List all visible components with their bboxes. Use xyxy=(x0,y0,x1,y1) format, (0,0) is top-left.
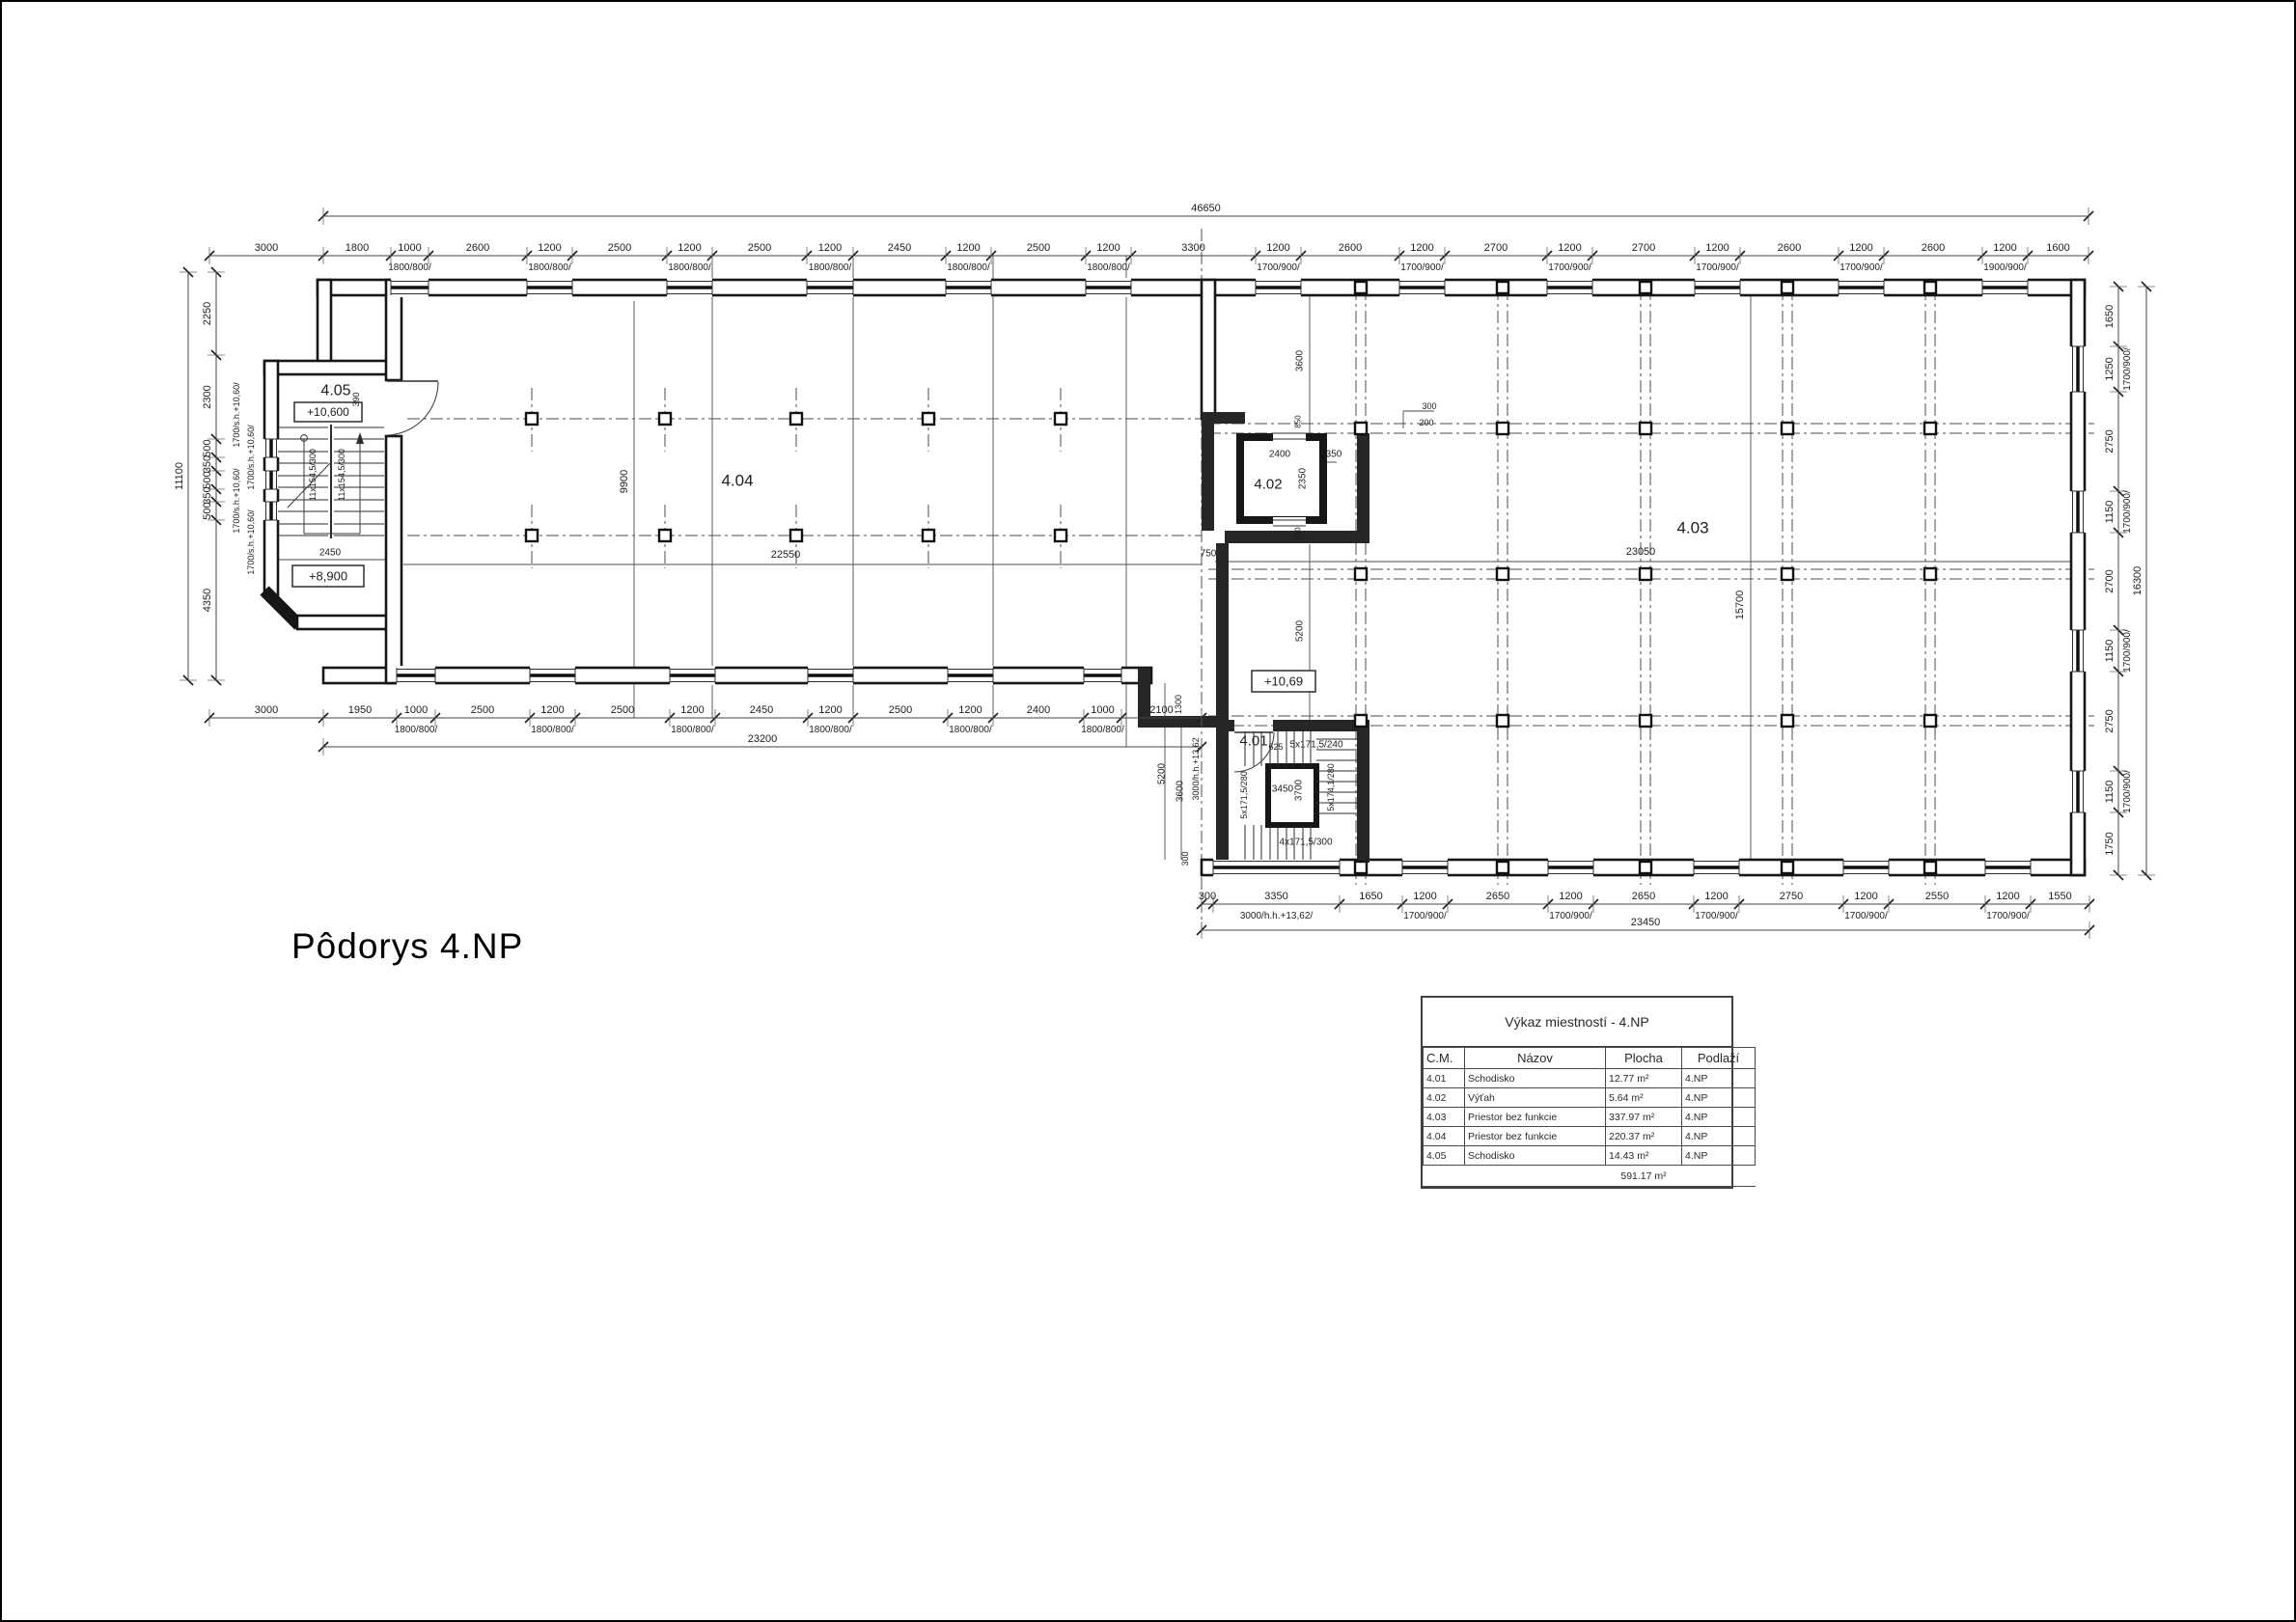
window-spec-label: 1800/800/ xyxy=(1087,262,1130,273)
room-table-header-podlazi: Podlaží xyxy=(1682,1048,1756,1069)
table-cell: 4.03 xyxy=(1424,1108,1465,1127)
column-marker xyxy=(1055,413,1066,425)
dimension-chains-layer: 3000180010002600120025001200250012002450… xyxy=(174,203,2155,939)
drawing-labels-layer: 4.05+10,6002450+8,90011x154,5/30011x154,… xyxy=(232,349,1746,866)
dim-label: 2500 xyxy=(611,704,634,716)
wall-segment xyxy=(297,616,392,629)
table-cell: 4.05 xyxy=(1424,1146,1465,1166)
room-table-header-nazov: Názov xyxy=(1465,1048,1606,1069)
drawing-label: 3000/h.h.+13,62 xyxy=(1191,737,1201,800)
wall-segment xyxy=(386,436,401,683)
table-row: 4.05 Schodisko 14.43 m² 4.NP xyxy=(1424,1146,1756,1166)
dim-chain: 3000180010002600120025001200250012002450… xyxy=(205,242,2093,273)
room-table: Výkaz miestností - 4.NP C.M. Názov Ploch… xyxy=(1421,996,1733,1189)
dim-label: 1800 xyxy=(346,242,369,254)
dim-label: 1200 xyxy=(818,242,842,254)
dim-label: 3350 xyxy=(1264,891,1287,902)
column-marker xyxy=(1640,282,1651,293)
table-total-row: 591.17 m² xyxy=(1424,1166,1756,1187)
wall-segment xyxy=(318,280,331,367)
dim-label: 1150 xyxy=(2104,501,2116,524)
column-marker xyxy=(1924,568,1936,580)
table-cell: 14.43 m² xyxy=(1606,1146,1682,1166)
window-spec-label: 1700/900/ xyxy=(2122,629,2133,673)
column-marker xyxy=(1497,282,1508,293)
dim-label: 1000 xyxy=(1091,704,1114,716)
drawing-label: 3700 xyxy=(1294,779,1305,801)
window-spec-label: 1800/800/ xyxy=(395,725,438,735)
room-label-4-02: 4.02 xyxy=(1254,477,1282,493)
dim-label: 2600 xyxy=(1778,242,1801,254)
window-spec-label: 1800/800/ xyxy=(528,262,571,273)
drawing-label: 22550 xyxy=(771,549,801,561)
table-cell: 5.64 m² xyxy=(1606,1088,1682,1108)
drawing-label: 300 xyxy=(1422,401,1436,411)
drawing-label: 5200 xyxy=(1295,619,1306,642)
stair-run-label: 5x171,5/240 xyxy=(1289,740,1342,751)
dim-label: 2750 xyxy=(2104,429,2116,453)
window-spec-label: 1800/800/ xyxy=(531,725,574,735)
dim-label: 1200 xyxy=(1410,242,1433,254)
dim-label: 4350 xyxy=(202,589,213,612)
drawing-label: 750 xyxy=(1201,549,1217,560)
drawing-label: 850 xyxy=(1294,527,1303,540)
floor-plan-canvas: 3000180010002600120025001200250012002450… xyxy=(2,2,2296,1622)
drawing-label: 9900 xyxy=(619,470,630,493)
dim-label: 2700 xyxy=(1632,242,1655,254)
column-marker xyxy=(1924,423,1936,434)
wall-segment xyxy=(1202,412,1245,424)
stair-run-label: 5x174,1/280 xyxy=(1326,763,1336,811)
dim-label: 2500 xyxy=(748,242,771,254)
dim-label: 46650 xyxy=(1191,203,1221,214)
dim-label: 1200 xyxy=(1996,891,2019,902)
dim-chain: 225023005003505003505004350 xyxy=(202,267,225,685)
stair-run-label: 11x154,5/300 xyxy=(308,449,318,501)
drawing-label: 2400 xyxy=(1269,450,1291,460)
stair-landing xyxy=(1268,766,1316,825)
column-marker xyxy=(1055,530,1066,541)
window-spec-label: 1800/800/ xyxy=(809,262,852,273)
room-label-4-01: 4.01 xyxy=(1239,733,1267,750)
dim-label: 2250 xyxy=(202,302,213,325)
dim-label: 1200 xyxy=(958,704,982,716)
dim-label: 2500 xyxy=(608,242,631,254)
window-spec-label: 1700/900/ xyxy=(1400,262,1444,273)
column-marker xyxy=(1782,282,1793,293)
door-arc xyxy=(387,382,438,435)
window-spec-label: 1700/900/ xyxy=(1986,911,2030,921)
dim-label: 2700 xyxy=(1484,242,1508,254)
table-cell: Schodisko xyxy=(1465,1146,1606,1166)
column-marker xyxy=(526,413,538,425)
column-marker xyxy=(1782,423,1793,434)
dim-chain: 46650 xyxy=(318,203,2093,225)
table-cell: 337.97 m² xyxy=(1606,1108,1682,1127)
table-cell: 4.NP xyxy=(1682,1108,1756,1127)
dim-label: 2300 xyxy=(202,385,213,408)
window-spec-label: 1700/900/ xyxy=(1695,911,1738,921)
dim-chain: 16300 xyxy=(2132,282,2155,880)
core-layer xyxy=(278,381,1369,863)
dim-label: 3000 xyxy=(255,704,278,716)
dim-label: 1650 xyxy=(1359,891,1382,902)
column-marker xyxy=(1640,862,1651,873)
table-cell: 4.NP xyxy=(1682,1088,1756,1108)
drawing-label: 850 xyxy=(1294,415,1303,428)
dim-label: 1200 xyxy=(1558,242,1581,254)
drawing-label: 23050 xyxy=(1626,546,1656,558)
dim-label: 1650 xyxy=(2104,305,2116,328)
table-cell: 4.01 xyxy=(1424,1069,1465,1088)
column-marker xyxy=(659,530,671,541)
table-cell xyxy=(1465,1166,1606,1187)
dim-label: 1200 xyxy=(1559,891,1582,902)
dim-label: 1950 xyxy=(348,704,372,716)
table-total-value: 591.17 m² xyxy=(1606,1166,1682,1187)
window-spec-label: 3000/h.h.+13,62/ xyxy=(1240,911,1314,921)
dim-label: 2500 xyxy=(1027,242,1050,254)
dim-label: 2100 xyxy=(1149,704,1173,716)
window-spec-label: 1800/800/ xyxy=(1081,725,1124,735)
dim-chain: 1650125027501150270011502750115017501700… xyxy=(2104,282,2133,880)
dim-chain: 23450 xyxy=(1197,917,2094,939)
dim-label: 1750 xyxy=(2104,832,2116,855)
table-cell: Priestor bez funkcie xyxy=(1465,1127,1606,1146)
drawing-label: 2450 xyxy=(319,548,342,559)
dim-label: 1550 xyxy=(2048,891,2071,902)
column-marker xyxy=(659,413,671,425)
column-marker xyxy=(1355,282,1367,293)
window-spec-label: 1800/800/ xyxy=(668,262,711,273)
page-border: 3000180010002600120025001200250012002450… xyxy=(0,0,2296,1622)
dim-label: 500 xyxy=(202,471,213,488)
table-cell: Schodisko xyxy=(1465,1069,1606,1088)
dim-label: 1200 xyxy=(1705,242,1729,254)
dim-label: 11100 xyxy=(174,462,185,490)
dim-label: 2600 xyxy=(1922,242,1945,254)
column-marker xyxy=(1924,862,1936,873)
column-marker xyxy=(526,530,538,541)
window-spec-label: 1700/900/ xyxy=(1696,262,1739,273)
wall-segment xyxy=(1216,543,1229,724)
column-marker xyxy=(923,530,934,541)
dim-label: 1000 xyxy=(404,704,428,716)
drawing-label: 3600 xyxy=(1176,780,1186,802)
window-spec-label: 1700/900/ xyxy=(1403,911,1447,921)
room-label-4-05: 4.05 xyxy=(320,383,350,399)
columns-layer xyxy=(526,282,1936,873)
room-table-title: Výkaz miestností - 4.NP xyxy=(1423,998,1731,1047)
dim-label: 1200 xyxy=(540,704,564,716)
column-marker xyxy=(1782,568,1793,580)
table-cell: 4.NP xyxy=(1682,1127,1756,1146)
dim-label: 1200 xyxy=(1704,891,1728,902)
dim-label: 350 xyxy=(202,486,213,504)
dim-label: 3000 xyxy=(255,242,278,254)
window-spec-label: 1700/900/ xyxy=(1840,262,1883,273)
window-spec-label: 1700/900/ xyxy=(1549,911,1592,921)
column-marker xyxy=(790,413,802,425)
window-spec-label: 1700/s.h.+10,60/ xyxy=(246,425,256,490)
drawing-label: 5200 xyxy=(1157,762,1168,784)
table-row: 4.02 Výťah 5.64 m² 4.NP xyxy=(1424,1088,1756,1108)
dim-label: 3300 xyxy=(1181,242,1204,254)
stair-treads xyxy=(1316,739,1357,813)
column-marker xyxy=(1924,282,1936,293)
dim-label: 16300 xyxy=(2132,566,2144,596)
window-spec-label: 1700/s.h.+10,60/ xyxy=(246,509,256,575)
drawing-label: 350 xyxy=(1326,450,1342,460)
level-label: +8,900 xyxy=(309,569,347,584)
witness-lines-layer xyxy=(278,256,2071,860)
dim-label: 2550 xyxy=(1925,891,1949,902)
column-marker xyxy=(1497,423,1508,434)
dim-label: 1200 xyxy=(680,704,704,716)
column-marker xyxy=(1640,715,1651,727)
stair-run-label: 4x171,5/300 xyxy=(1279,838,1332,848)
column-marker xyxy=(1782,862,1793,873)
stair-run-label: 5x171,5/280 xyxy=(1239,771,1249,819)
window-spec-label: 1900/900/ xyxy=(1983,262,2027,273)
dim-label: 2750 xyxy=(1780,891,1803,902)
window-spec-label: 1800/800/ xyxy=(388,262,431,273)
level-label: +10,69 xyxy=(1264,674,1303,689)
wall-segment xyxy=(1357,724,1369,863)
dim-label: 23450 xyxy=(1631,917,1661,928)
dim-label: 500 xyxy=(202,439,213,456)
column-marker xyxy=(1640,423,1651,434)
dim-label: 2500 xyxy=(471,704,494,716)
page-title: Pôdorys 4.NP xyxy=(291,926,523,967)
dim-label: 1600 xyxy=(2046,242,2069,254)
column-marker xyxy=(1497,862,1508,873)
dim-chain: 3000195010002500120025001200245012002500… xyxy=(205,704,1206,735)
stair-run-label: 11x154,5/300 xyxy=(337,449,346,501)
column-marker xyxy=(1355,423,1367,434)
window-spec-label: 1800/800/ xyxy=(671,725,714,735)
dim-label: 2600 xyxy=(466,242,489,254)
dim-label: 2700 xyxy=(2104,569,2116,592)
drawing-label: 300 xyxy=(1180,851,1190,866)
drawing-label: 625 xyxy=(1268,742,1283,752)
table-cell: 4.04 xyxy=(1424,1127,1465,1146)
dim-label: 1250 xyxy=(2104,357,2116,380)
wall-segment xyxy=(1216,724,1229,860)
dim-label: 2650 xyxy=(1632,891,1655,902)
table-cell xyxy=(1682,1166,1756,1187)
dim-label: 2600 xyxy=(1339,242,1362,254)
dim-label: 1200 xyxy=(538,242,561,254)
window-spec-label: 1700/900/ xyxy=(2122,490,2133,534)
window-spec-label: 1800/800/ xyxy=(949,725,992,735)
dim-label: 1150 xyxy=(2104,781,2116,804)
table-row: 4.03 Priestor bez funkcie 337.97 m² 4.NP xyxy=(1424,1108,1756,1127)
table-cell: 4.02 xyxy=(1424,1088,1465,1108)
window-spec-label: 1700/s.h.+10,60/ xyxy=(232,382,241,448)
dim-label: 1200 xyxy=(1266,242,1289,254)
column-marker xyxy=(1782,715,1793,727)
window-spec-label: 1800/800/ xyxy=(809,725,852,735)
dim-label: 2400 xyxy=(1027,704,1050,716)
column-marker xyxy=(1355,715,1367,727)
window-spec-label: 1700/900/ xyxy=(2122,347,2133,391)
dim-label: 23200 xyxy=(748,733,778,745)
column-marker xyxy=(1497,568,1508,580)
dim-label: 1000 xyxy=(398,242,421,254)
dim-label: 2500 xyxy=(889,704,912,716)
dim-label: 1200 xyxy=(1096,242,1120,254)
dim-label: 1200 xyxy=(678,242,701,254)
table-cell: 4.NP xyxy=(1682,1069,1756,1088)
dim-label: 350 xyxy=(202,455,213,473)
drawing-label: 3600 xyxy=(1295,349,1306,371)
column-marker xyxy=(1640,568,1651,580)
dim-label: 1200 xyxy=(1993,242,2016,254)
window-spec-label: 1700/900/ xyxy=(2122,770,2133,813)
dim-label: 1200 xyxy=(818,704,842,716)
window-spec-label: 1700/900/ xyxy=(1844,911,1888,921)
room-label-4-04: 4.04 xyxy=(721,472,753,490)
drawing-label: 15700 xyxy=(1734,591,1746,620)
drawing-label: 2350 xyxy=(1298,467,1309,489)
window-spec-label: 1700/900/ xyxy=(1257,262,1300,273)
room-table-header-plocha: Plocha xyxy=(1606,1048,1682,1069)
column-marker xyxy=(1355,862,1367,873)
table-cell: 220.37 m² xyxy=(1606,1127,1682,1146)
dim-label: 2650 xyxy=(1486,891,1509,902)
wall-segment xyxy=(1202,424,1214,531)
stair-arrow xyxy=(356,432,364,444)
table-row: 4.01 Schodisko 12.77 m² 4.NP xyxy=(1424,1069,1756,1088)
column-marker xyxy=(1355,568,1367,580)
wall-segment xyxy=(1202,280,1215,419)
dim-chain: 23200 xyxy=(318,733,1206,756)
column-marker xyxy=(790,530,802,541)
dim-chain: 11100 xyxy=(174,267,197,685)
table-cell: Priestor bez funkcie xyxy=(1465,1108,1606,1127)
drawing-label: 3450 xyxy=(1272,784,1294,795)
drawing-label: 1300 xyxy=(1174,695,1183,714)
table-cell: Výťah xyxy=(1465,1088,1606,1108)
level-label: +10,600 xyxy=(307,405,349,419)
wall-segment xyxy=(1357,433,1369,543)
table-cell xyxy=(1424,1166,1465,1187)
dim-label: 1150 xyxy=(2104,640,2116,663)
stair-treads xyxy=(278,427,328,536)
wall-segment xyxy=(323,668,1151,683)
grid-axes-layer xyxy=(407,229,2094,933)
room-table-header-row: C.M. Názov Plocha Podlaží xyxy=(1424,1048,1756,1069)
dim-label: 1200 xyxy=(1413,891,1436,902)
dim-label: 2450 xyxy=(750,704,773,716)
table-cell: 4.NP xyxy=(1682,1146,1756,1166)
wall-segment xyxy=(264,361,392,374)
dim-label: 300 xyxy=(1199,891,1216,902)
window-spec-label: 1800/800/ xyxy=(947,262,990,273)
dim-label: 500 xyxy=(202,502,213,519)
room-label-4-03: 4.03 xyxy=(1676,519,1708,537)
column-marker xyxy=(1497,715,1508,727)
column-marker xyxy=(923,413,934,425)
room-table-header-cm: C.M. xyxy=(1424,1048,1465,1069)
drawing-label: 200 xyxy=(1419,418,1433,427)
dim-label: 1200 xyxy=(1849,242,1872,254)
dim-label: 2450 xyxy=(888,242,911,254)
column-marker xyxy=(1924,715,1936,727)
table-cell: 12.77 m² xyxy=(1606,1069,1682,1088)
dim-label: 1200 xyxy=(1854,891,1877,902)
table-row: 4.04 Priestor bez funkcie 220.37 m² 4.NP xyxy=(1424,1127,1756,1146)
drawing-label: 390 xyxy=(351,392,361,406)
window-spec-label: 1700/s.h.+10,60/ xyxy=(232,468,241,534)
wall-chamfer xyxy=(264,591,299,625)
dim-label: 1200 xyxy=(956,242,980,254)
dim-label: 2750 xyxy=(2104,709,2116,732)
window-spec-label: 1700/900/ xyxy=(1548,262,1591,273)
